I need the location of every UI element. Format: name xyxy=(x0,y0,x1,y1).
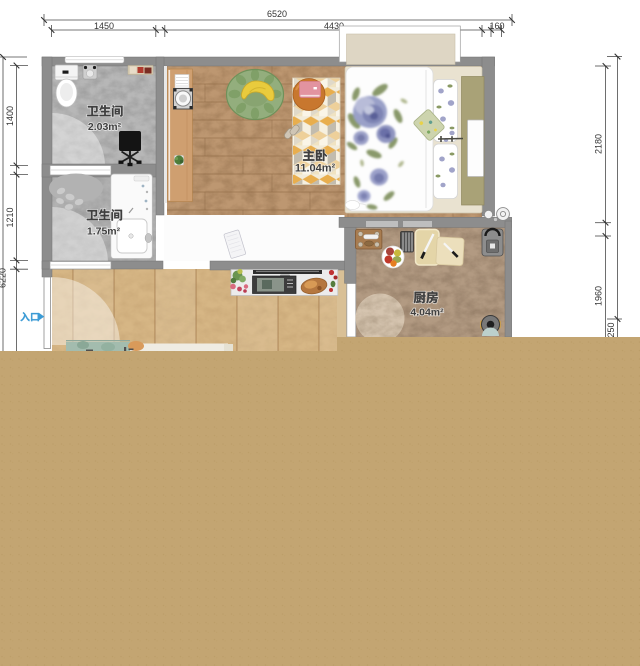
svg-text:6220: 6220 xyxy=(0,268,8,288)
svg-text:160: 160 xyxy=(489,21,504,31)
svg-text:2.03m²: 2.03m² xyxy=(88,121,122,133)
svg-text:11.04m²: 11.04m² xyxy=(295,163,336,175)
svg-text:1450: 1450 xyxy=(94,21,114,31)
svg-text:1.75m²: 1.75m² xyxy=(87,226,121,238)
svg-text:1960: 1960 xyxy=(594,286,604,306)
svg-text:1210: 1210 xyxy=(5,207,15,227)
svg-text:2180: 2180 xyxy=(594,134,604,154)
svg-text:250: 250 xyxy=(606,322,616,337)
svg-text:4.04m²: 4.04m² xyxy=(410,307,444,319)
svg-text:1400: 1400 xyxy=(5,106,15,126)
svg-text:6520: 6520 xyxy=(267,9,287,19)
